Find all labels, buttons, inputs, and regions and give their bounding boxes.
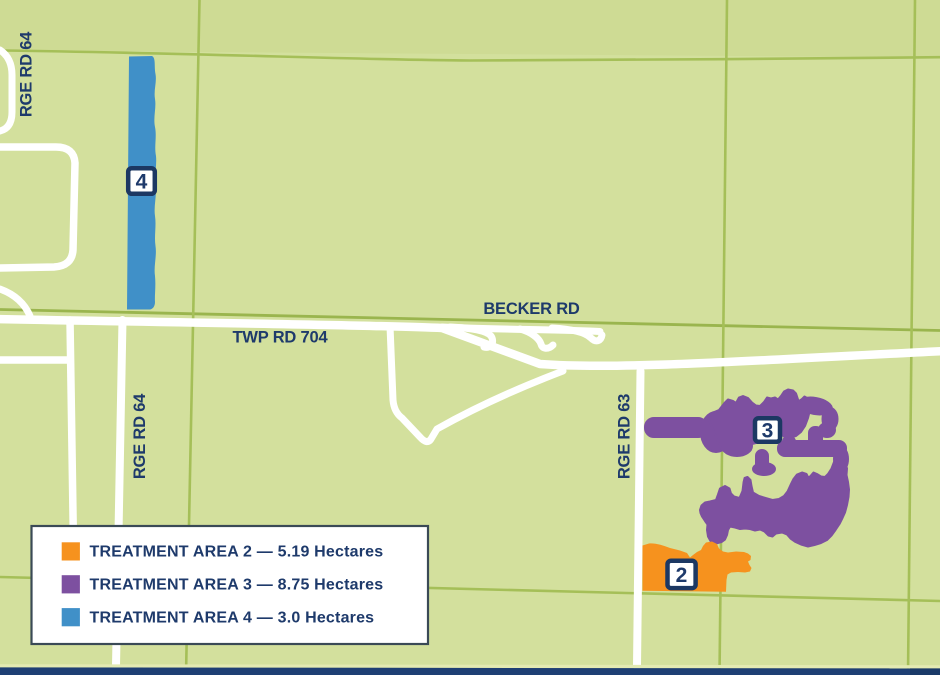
svg-text:RGE RD 64: RGE RD 64 bbox=[131, 393, 149, 479]
svg-text:TREATMENT AREA 3 — 8.75 Hectar: TREATMENT AREA 3 — 8.75 Hectares bbox=[90, 577, 384, 594]
svg-text:TREATMENT AREA 2 — 5.19 Hectar: TREATMENT AREA 2 — 5.19 Hectares bbox=[90, 544, 384, 561]
svg-text:BECKER RD: BECKER RD bbox=[483, 300, 580, 318]
svg-text:TREATMENT AREA 4 — 3.0 Hectare: TREATMENT AREA 4 — 3.0 Hectares bbox=[90, 609, 375, 626]
svg-text:TWP RD 704: TWP RD 704 bbox=[233, 329, 329, 347]
svg-text:2: 2 bbox=[676, 564, 688, 587]
svg-text:3: 3 bbox=[762, 420, 774, 443]
svg-text:RGE RD 63: RGE RD 63 bbox=[616, 394, 634, 479]
svg-text:RGE RD 64: RGE RD 64 bbox=[18, 31, 36, 117]
svg-text:4: 4 bbox=[136, 171, 148, 194]
